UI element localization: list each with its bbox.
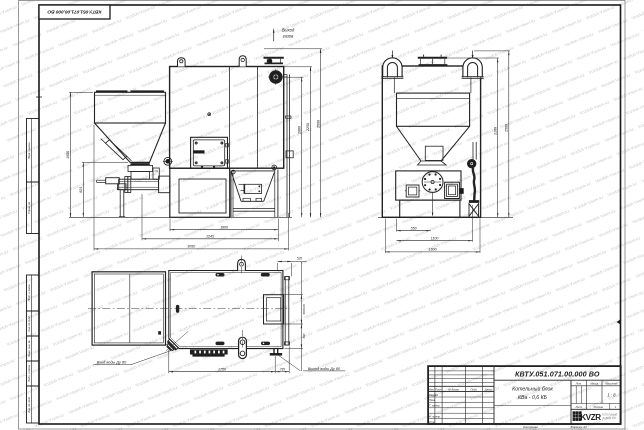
svg-text:Vozduh-Vsem.kz: Vozduh-Vsem.kz	[610, 235, 641, 251]
svg-text:Vozduh-Vsem.kz: Vozduh-Vsem.kz	[150, 235, 181, 251]
svg-text:Vozduh-Vsem.kz: Vozduh-Vsem.kz	[539, 4, 570, 20]
svg-text:2500: 2500	[316, 120, 320, 129]
svg-text:Vozduh-Vsem.kz: Vozduh-Vsem.kz	[251, 0, 282, 7]
svg-text:Vozduh-Vsem.kz: Vozduh-Vsem.kz	[245, 86, 276, 102]
svg-text:500±20: 500±20	[302, 304, 306, 315]
svg-text:Vozduh-Vsem.kz: Vozduh-Vsem.kz	[561, 181, 592, 197]
svg-text:Vozduh-Vsem.kz: Vozduh-Vsem.kz	[355, 4, 386, 20]
svg-text:Vozduh-Vsem.kz: Vozduh-Vsem.kz	[83, 263, 114, 279]
svg-text:Vozduh-Vsem.kz: Vozduh-Vsem.kz	[165, 303, 196, 319]
svg-text:Копировал: Копировал	[523, 425, 538, 429]
svg-text:Vozduh-Vsem.kz: Vozduh-Vsem.kz	[180, 167, 211, 183]
svg-text:Vozduh-Vsem.kz: Vozduh-Vsem.kz	[524, 140, 555, 156]
svg-text:Vozduh-Vsem.kz: Vozduh-Vsem.kz	[252, 399, 283, 415]
svg-text:Vozduh-Vsem.kz: Vozduh-Vsem.kz	[622, 249, 644, 265]
svg-text:Листов: Листов	[592, 405, 603, 409]
svg-text:Vozduh-Vsem.kz: Vozduh-Vsem.kz	[0, 249, 9, 265]
svg-text:ЗАВОД КЗР: ЗАВОД КЗР	[603, 417, 617, 420]
svg-text:Подп.: Подп.	[471, 387, 478, 391]
svg-text:Справ. №: Справ. №	[27, 202, 31, 214]
svg-text:Vozduh-Vsem.kz: Vozduh-Vsem.kz	[239, 181, 270, 197]
svg-text:Vozduh-Vsem.kz: Vozduh-Vsem.kz	[159, 195, 190, 211]
svg-text:Vozduh-Vsem.kz: Vozduh-Vsem.kz	[236, 127, 267, 143]
svg-text:Vozduh-Vsem.kz: Vozduh-Vsem.kz	[377, 181, 408, 197]
svg-text:Vozduh-Vsem.kz: Vozduh-Vsem.kz	[190, 127, 221, 143]
svg-text:Инв. № подл.: Инв. № подл.	[27, 396, 31, 413]
svg-text:Vozduh-Vsem.kz: Vozduh-Vsem.kz	[589, 263, 620, 279]
svg-text:Vozduh-Vsem.kz: Vozduh-Vsem.kz	[333, 31, 364, 47]
svg-text:Vozduh-Vsem.kz: Vozduh-Vsem.kz	[613, 290, 644, 306]
svg-text:Vozduh-Vsem.kz: Vozduh-Vsem.kz	[297, 0, 328, 7]
svg-text:Vozduh-Vsem.kz: Vozduh-Vsem.kz	[352, 154, 383, 170]
svg-text:Vozduh-Vsem.kz: Vozduh-Vsem.kz	[195, 31, 226, 47]
svg-text:Vozduh-Vsem.kz: Vozduh-Vsem.kz	[597, 18, 628, 34]
svg-text:Vozduh-Vsem.kz: Vozduh-Vsem.kz	[567, 86, 598, 102]
svg-text:795: 795	[280, 367, 286, 371]
svg-text:Взам. инв. №: Взам. инв. №	[27, 340, 31, 357]
svg-text:Vozduh-Vsem.kz: Vozduh-Vsem.kz	[346, 45, 377, 61]
svg-text:Перв. примен.: Перв. примен.	[27, 141, 31, 159]
svg-text:Vozduh-Vsem.kz: Vozduh-Vsem.kz	[98, 331, 129, 347]
svg-text:Vozduh-Vsem.kz: Vozduh-Vsem.kz	[193, 181, 224, 197]
svg-text:Vozduh-Vsem.kz: Vozduh-Vsem.kz	[475, 290, 506, 306]
svg-text:1600: 1600	[429, 248, 437, 252]
svg-text:Vozduh-Vsem.kz: Vozduh-Vsem.kz	[640, 167, 644, 183]
svg-text:Vozduh-Vsem.kz: Vozduh-Vsem.kz	[64, 344, 95, 360]
svg-text:Изм.: Изм.	[429, 387, 435, 391]
svg-text:КВТУ.051.071.00.000 ВО: КВТУ.051.071.00.000 ВО	[515, 370, 600, 379]
svg-text:Vozduh-Vsem.kz: Vozduh-Vsem.kz	[46, 222, 77, 238]
svg-text:Vozduh-Vsem.kz: Vozduh-Vsem.kz	[545, 113, 576, 129]
svg-text:Vozduh-Vsem.kz: Vozduh-Vsem.kz	[36, 59, 67, 75]
svg-text:Vozduh-Vsem.kz: Vozduh-Vsem.kz	[272, 167, 303, 183]
svg-text:Vozduh-Vsem.kz: Vozduh-Vsem.kz	[368, 222, 399, 238]
svg-text:Vozduh-Vsem.kz: Vozduh-Vsem.kz	[319, 371, 350, 387]
svg-text:Масса: Масса	[590, 382, 598, 386]
svg-text:Vozduh-Vsem.kz: Vozduh-Vsem.kz	[181, 371, 212, 387]
svg-text:Vozduh-Vsem.kz: Vozduh-Vsem.kz	[564, 235, 595, 251]
svg-text:Vozduh-Vsem.kz: Vozduh-Vsem.kz	[76, 154, 107, 170]
svg-text:Vozduh-Vsem.kz: Vozduh-Vsem.kz	[585, 4, 616, 20]
svg-text:Vozduh-Vsem.kz: Vozduh-Vsem.kz	[438, 249, 469, 265]
svg-text:Vozduh-Vsem.kz: Vozduh-Vsem.kz	[138, 426, 169, 430]
svg-text:Vozduh-Vsem.kz: Vozduh-Vsem.kz	[52, 127, 83, 143]
svg-text:Vozduh-Vsem.kz: Vozduh-Vsem.kz	[276, 426, 307, 430]
svg-text:Vozduh-Vsem.kz: Vozduh-Vsem.kz	[414, 222, 445, 238]
svg-text:Vozduh-Vsem.kz: Vozduh-Vsem.kz	[585, 208, 616, 224]
svg-text:Vozduh-Vsem.kz: Vozduh-Vsem.kz	[313, 263, 344, 279]
svg-text:Котельный блок: Котельный блок	[512, 385, 553, 392]
svg-text:Vozduh-Vsem.kz: Vozduh-Vsem.kz	[429, 86, 460, 102]
svg-text:Vozduh-Vsem.kz: Vozduh-Vsem.kz	[18, 344, 49, 360]
svg-text:Vozduh-Vsem.kz: Vozduh-Vsem.kz	[206, 399, 237, 415]
svg-text:Vozduh-Vsem.kz: Vozduh-Vsem.kz	[39, 113, 70, 129]
svg-text:Vozduh-Vsem.kz: Vozduh-Vsem.kz	[282, 331, 313, 347]
svg-text:Vozduh-Vsem.kz: Vozduh-Vsem.kz	[89, 371, 120, 387]
svg-text:Vozduh-Vsem.kz: Vozduh-Vsem.kz	[561, 385, 592, 401]
svg-text:Vozduh-Vsem.kz: Vozduh-Vsem.kz	[604, 127, 635, 143]
svg-text:Vozduh-Vsem.kz: Vozduh-Vsem.kz	[119, 99, 150, 115]
svg-text:Vozduh-Vsem.kz: Vozduh-Vsem.kz	[242, 235, 273, 251]
svg-text:Vozduh-Vsem.kz: Vozduh-Vsem.kz	[417, 276, 448, 292]
svg-text:Vozduh-Vsem.kz: Vozduh-Vsem.kz	[512, 331, 543, 347]
svg-text:2500: 2500	[505, 124, 509, 133]
svg-text:Vozduh-Vsem.kz: Vozduh-Vsem.kz	[140, 72, 171, 88]
svg-text:Vozduh-Vsem.kz: Vozduh-Vsem.kz	[414, 426, 445, 430]
svg-text:Vozduh-Vsem.kz: Vozduh-Vsem.kz	[508, 72, 539, 88]
svg-text:Vozduh-Vsem.kz: Vozduh-Vsem.kz	[592, 317, 623, 333]
svg-text:Vozduh-Vsem.kz: Vozduh-Vsem.kz	[371, 276, 402, 292]
svg-text:Vozduh-Vsem.kz: Vozduh-Vsem.kz	[85, 113, 116, 129]
svg-text:Vozduh-Vsem.kz: Vozduh-Vsem.kz	[497, 263, 528, 279]
svg-text:Vozduh-Vsem.kz: Vozduh-Vsem.kz	[509, 276, 540, 292]
svg-text:Vozduh-Vsem.kz: Vozduh-Vsem.kz	[374, 331, 405, 347]
svg-text:Vozduh-Vsem.kz: Vozduh-Vsem.kz	[0, 208, 18, 224]
svg-text:Vozduh-Vsem.kz: Vozduh-Vsem.kz	[162, 249, 193, 265]
svg-text:Vozduh-Vsem.kz: Vozduh-Vsem.kz	[171, 208, 202, 224]
svg-text:Vozduh-Vsem.kz: Vozduh-Vsem.kz	[570, 140, 601, 156]
svg-text:Vozduh-Vsem.kz: Vozduh-Vsem.kz	[383, 86, 414, 102]
svg-text:Vozduh-Vsem.kz: Vozduh-Vsem.kz	[405, 263, 436, 279]
svg-text:Vozduh-Vsem.kz: Vozduh-Vsem.kz	[619, 195, 644, 211]
svg-text:Vozduh-Vsem.kz: Vozduh-Vsem.kz	[70, 45, 101, 61]
svg-text:Vozduh-Vsem.kz: Vozduh-Vsem.kz	[637, 113, 644, 129]
svg-text:Vozduh-Vsem.kz: Vozduh-Vsem.kz	[631, 4, 644, 20]
svg-text:Vozduh-Vsem.kz: Vozduh-Vsem.kz	[459, 18, 490, 34]
svg-text:Vozduh-Vsem.kz: Vozduh-Vsem.kz	[224, 317, 255, 333]
svg-text:Vozduh-Vsem.kz: Vozduh-Vsem.kz	[484, 249, 515, 265]
svg-text:Vozduh-Vsem.kz: Vozduh-Vsem.kz	[328, 127, 359, 143]
svg-text:Vozduh-Vsem.kz: Vozduh-Vsem.kz	[149, 31, 180, 47]
svg-text:Vozduh-Vsem.kz: Vozduh-Vsem.kz	[411, 371, 442, 387]
svg-text:Vozduh-Vsem.kz: Vozduh-Vsem.kz	[598, 222, 629, 238]
svg-text:Vozduh-Vsem.kz: Vozduh-Vsem.kz	[294, 140, 325, 156]
svg-text:Vozduh-Vsem.kz: Vozduh-Vsem.kz	[466, 331, 497, 347]
svg-text:Vozduh-Vsem.kz: Vozduh-Vsem.kz	[82, 59, 113, 75]
svg-text:Vozduh-Vsem.kz: Vozduh-Vsem.kz	[558, 127, 589, 143]
svg-text:Vozduh-Vsem.kz: Vozduh-Vsem.kz	[171, 4, 202, 20]
svg-text:Vozduh-Vsem.kz: Vozduh-Vsem.kz	[205, 0, 236, 7]
svg-text:Vozduh-Vsem.kz: Vozduh-Vsem.kz	[104, 235, 135, 251]
svg-text:Vozduh-Vsem.kz: Vozduh-Vsem.kz	[481, 0, 512, 7]
svg-text:Vozduh-Vsem.kz: Vozduh-Vsem.kz	[460, 426, 491, 430]
svg-text:Vozduh-Vsem.kz: Vozduh-Vsem.kz	[298, 399, 329, 415]
svg-text:Vozduh-Vsem.kz: Vozduh-Vsem.kz	[588, 59, 619, 75]
svg-text:Vozduh-Vsem.kz: Vozduh-Vsem.kz	[364, 167, 395, 183]
svg-text:Vozduh-Vsem.kz: Vozduh-Vsem.kz	[625, 99, 644, 115]
svg-text:Выход воды Ду 80: Выход воды Ду 80	[308, 367, 341, 371]
svg-text:Vozduh-Vsem.kz: Vozduh-Vsem.kz	[300, 249, 331, 265]
svg-text:Т. контр.: Т. контр.	[429, 404, 440, 408]
svg-text:Vozduh-Vsem.kz: Vozduh-Vsem.kz	[232, 72, 263, 88]
svg-text:Vozduh-Vsem.kz: Vozduh-Vsem.kz	[218, 412, 249, 428]
svg-text:Vozduh-Vsem.kz: Vozduh-Vsem.kz	[107, 290, 138, 306]
svg-text:Vozduh-Vsem.kz: Vozduh-Vsem.kz	[346, 249, 377, 265]
svg-text:Vozduh-Vsem.kz: Vozduh-Vsem.kz	[404, 59, 435, 75]
svg-text:Vozduh-Vsem.kz: Vozduh-Vsem.kz	[48, 72, 79, 88]
svg-text:Vozduh-Vsem.kz: Vozduh-Vsem.kz	[159, 0, 190, 7]
svg-text:Vozduh-Vsem.kz: Vozduh-Vsem.kz	[217, 4, 248, 20]
svg-text:Vozduh-Vsem.kz: Vozduh-Vsem.kz	[563, 31, 594, 47]
svg-text:Подп. и дата: Подп. и дата	[27, 284, 31, 301]
svg-text:Vozduh-Vsem.kz: Vozduh-Vsem.kz	[183, 18, 214, 34]
svg-text:Vozduh-Vsem.kz: Vozduh-Vsem.kz	[383, 290, 414, 306]
svg-text:Vozduh-Vsem.kz: Vozduh-Vsem.kz	[6, 331, 37, 347]
svg-text:2100: 2100	[493, 127, 497, 136]
svg-text:Vozduh-Vsem.kz: Vozduh-Vsem.kz	[92, 426, 123, 430]
svg-text:Vozduh-Vsem.kz: Vozduh-Vsem.kz	[68, 399, 99, 415]
svg-text:Vozduh-Vsem.kz: Vozduh-Vsem.kz	[321, 18, 352, 34]
svg-text:Vozduh-Vsem.kz: Vozduh-Vsem.kz	[0, 0, 6, 7]
svg-text:Vozduh-Vsem.kz: Vozduh-Vsem.kz	[55, 385, 86, 401]
svg-text:Vozduh-Vsem.kz: Vozduh-Vsem.kz	[598, 426, 629, 430]
svg-text:Vozduh-Vsem.kz: Vozduh-Vsem.kz	[570, 344, 601, 360]
svg-text:Vozduh-Vsem.kz: Vozduh-Vsem.kz	[340, 344, 371, 360]
svg-text:Vozduh-Vsem.kz: Vozduh-Vsem.kz	[493, 4, 524, 20]
svg-text:Vozduh-Vsem.kz: Vozduh-Vsem.kz	[199, 290, 230, 306]
svg-text:КВТУ.051.071.00.000 ВО: КВТУ.051.071.00.000 ВО	[47, 8, 101, 14]
svg-text:Vozduh-Vsem.kz: Vozduh-Vsem.kz	[481, 195, 512, 211]
svg-text:Vozduh-Vsem.kz: Vozduh-Vsem.kz	[521, 290, 552, 306]
svg-text:Vozduh-Vsem.kz: Vozduh-Vsem.kz	[390, 399, 421, 415]
svg-text:Vozduh-Vsem.kz: Vozduh-Vsem.kz	[309, 208, 340, 224]
svg-text:Vozduh-Vsem.kz: Vozduh-Vsem.kz	[429, 290, 460, 306]
svg-text:Vozduh-Vsem.kz: Vozduh-Vsem.kz	[129, 263, 160, 279]
svg-text:Vozduh-Vsem.kz: Vozduh-Vsem.kz	[500, 317, 531, 333]
svg-text:Vozduh-Vsem.kz: Vozduh-Vsem.kz	[582, 154, 613, 170]
svg-text:Vozduh-Vsem.kz: Vozduh-Vsem.kz	[126, 412, 157, 428]
svg-text:Vozduh-Vsem.kz: Vozduh-Vsem.kz	[496, 59, 527, 75]
svg-text:Vozduh-Vsem.kz: Vozduh-Vsem.kz	[631, 208, 644, 224]
svg-text:Vozduh-Vsem.kz: Vozduh-Vsem.kz	[600, 72, 631, 88]
svg-text:Vozduh-Vsem.kz: Vozduh-Vsem.kz	[539, 208, 570, 224]
svg-text:№ докум.: № докум.	[448, 387, 460, 391]
svg-text:Vozduh-Vsem.kz: Vozduh-Vsem.kz	[328, 331, 359, 347]
svg-text:Vozduh-Vsem.kz: Vozduh-Vsem.kz	[362, 317, 393, 333]
svg-text:Vozduh-Vsem.kz: Vozduh-Vsem.kz	[153, 86, 184, 102]
svg-text:Vozduh-Vsem.kz: Vozduh-Vsem.kz	[138, 222, 169, 238]
svg-text:Vozduh-Vsem.kz: Vozduh-Vsem.kz	[528, 399, 559, 415]
svg-text:Vozduh-Vsem.kz: Vozduh-Vsem.kz	[447, 4, 478, 20]
svg-text:Vozduh-Vsem.kz: Vozduh-Vsem.kz	[156, 140, 187, 156]
svg-text:Vozduh-Vsem.kz: Vozduh-Vsem.kz	[576, 249, 607, 265]
svg-text:Vozduh-Vsem.kz: Vozduh-Vsem.kz	[73, 303, 104, 319]
svg-text:Vozduh-Vsem.kz: Vozduh-Vsem.kz	[113, 195, 144, 211]
svg-text:Vozduh-Vsem.kz: Vozduh-Vsem.kz	[285, 385, 316, 401]
svg-text:Vozduh-Vsem.kz: Vozduh-Vsem.kz	[542, 59, 573, 75]
svg-text:Vozduh-Vsem.kz: Vozduh-Vsem.kz	[0, 303, 12, 319]
svg-text:Vozduh-Vsem.kz: Vozduh-Vsem.kz	[638, 317, 644, 333]
svg-text:Vozduh-Vsem.kz: Vozduh-Vsem.kz	[435, 0, 466, 7]
svg-text:821: 821	[79, 187, 83, 193]
svg-text:Vozduh-Vsem.kz: Vozduh-Vsem.kz	[395, 303, 426, 319]
svg-text:Vozduh-Vsem.kz: Vozduh-Vsem.kz	[94, 72, 125, 88]
svg-text:Vozduh-Vsem.kz: Vozduh-Vsem.kz	[635, 263, 644, 279]
svg-text:Vozduh-Vsem.kz: Vozduh-Vsem.kz	[620, 399, 644, 415]
svg-text:Vozduh-Vsem.kz: Vozduh-Vsem.kz	[67, 195, 98, 211]
svg-text:Vozduh-Vsem.kz: Vozduh-Vsem.kz	[162, 45, 193, 61]
svg-text:Vozduh-Vsem.kz: Vozduh-Vsem.kz	[273, 371, 304, 387]
svg-text:Vozduh-Vsem.kz: Vozduh-Vsem.kz	[552, 222, 583, 238]
svg-text:Vozduh-Vsem.kz: Vozduh-Vsem.kz	[208, 45, 239, 61]
svg-text:Vozduh-Vsem.kz: Vozduh-Vsem.kz	[88, 167, 119, 183]
svg-text:Vozduh-Vsem.kz: Vozduh-Vsem.kz	[324, 72, 355, 88]
svg-text:Лит.: Лит.	[575, 382, 582, 386]
svg-text:Vozduh-Vsem.kz: Vozduh-Vsem.kz	[607, 181, 638, 197]
svg-text:Vozduh-Vsem.kz: Vozduh-Vsem.kz	[312, 59, 343, 75]
svg-text:Vozduh-Vsem.kz: Vozduh-Vsem.kz	[147, 385, 178, 401]
svg-text:1800: 1800	[220, 225, 228, 229]
svg-text:Vozduh-Vsem.kz: Vozduh-Vsem.kz	[368, 426, 399, 430]
svg-text:Выход: Выход	[282, 28, 295, 33]
svg-text:Vozduh-Vsem.kz: Vozduh-Vsem.kz	[123, 358, 154, 374]
svg-text:Vozduh-Vsem.kz: Vozduh-Vsem.kz	[186, 72, 217, 88]
svg-text:Vozduh-Vsem.kz: Vozduh-Vsem.kz	[386, 344, 417, 360]
svg-text:Vozduh-Vsem.kz: Vozduh-Vsem.kz	[223, 113, 254, 129]
svg-text:Vozduh-Vsem.kz: Vozduh-Vsem.kz	[579, 303, 610, 319]
svg-text:Vozduh-Vsem.kz: Vozduh-Vsem.kz	[42, 167, 73, 183]
svg-text:Vozduh-Vsem.kz: Vozduh-Vsem.kz	[61, 290, 92, 306]
svg-text:Vozduh-Vsem.kz: Vozduh-Vsem.kz	[530, 45, 561, 61]
svg-text:Vozduh-Vsem.kz: Vozduh-Vsem.kz	[374, 127, 405, 143]
svg-text:Vozduh-Vsem.kz: Vozduh-Vsem.kz	[502, 167, 533, 183]
svg-text:Vozduh-Vsem.kz: Vozduh-Vsem.kz	[269, 113, 300, 129]
svg-text:Vozduh-Vsem.kz: Vozduh-Vsem.kz	[37, 263, 68, 279]
svg-text:Vozduh-Vsem.kz: Vozduh-Vsem.kz	[119, 303, 150, 319]
svg-text:Vozduh-Vsem.kz: Vozduh-Vsem.kz	[125, 4, 156, 20]
svg-text:Vozduh-Vsem.kz: Vozduh-Vsem.kz	[199, 86, 230, 102]
svg-text:Vozduh-Vsem.kz: Vozduh-Vsem.kz	[487, 99, 518, 115]
svg-text:Vozduh-Vsem.kz: Vozduh-Vsem.kz	[110, 344, 141, 360]
svg-text:Vozduh-Vsem.kz: Vozduh-Vsem.kz	[517, 31, 548, 47]
svg-text:Vozduh-Vsem.kz: Vozduh-Vsem.kz	[448, 412, 479, 428]
svg-text:Vozduh-Vsem.kz: Vozduh-Vsem.kz	[579, 99, 610, 115]
svg-text:1: 1	[615, 405, 617, 409]
svg-text:Утв.: Утв.	[429, 420, 435, 424]
svg-text:Vozduh-Vsem.kz: Vozduh-Vsem.kz	[478, 140, 509, 156]
svg-text:Vozduh-Vsem.kz: Vozduh-Vsem.kz	[291, 290, 322, 306]
svg-text:Vozduh-Vsem.kz: Vozduh-Vsem.kz	[540, 412, 571, 428]
svg-text:Vozduh-Vsem.kz: Vozduh-Vsem.kz	[294, 344, 325, 360]
svg-text:Vozduh-Vsem.kz: Vozduh-Vsem.kz	[15, 86, 46, 102]
svg-text:550: 550	[411, 226, 417, 230]
svg-text:Vozduh-Vsem.kz: Vozduh-Vsem.kz	[401, 208, 432, 224]
svg-text:Vozduh-Vsem.kz: Vozduh-Vsem.kz	[9, 385, 40, 401]
svg-text:Vozduh-Vsem.kz: Vozduh-Vsem.kz	[0, 317, 25, 333]
svg-text:Vozduh-Vsem.kz: Vozduh-Vsem.kz	[438, 45, 469, 61]
svg-text:Vozduh-Vsem.kz: Vozduh-Vsem.kz	[254, 249, 285, 265]
svg-text:Vozduh-Vsem.kz: Vozduh-Vsem.kz	[0, 358, 16, 374]
svg-text:Vozduh-Vsem.kz: Vozduh-Vsem.kz	[555, 276, 586, 292]
svg-text:1900: 1900	[66, 151, 70, 159]
svg-text:Vozduh-Vsem.kz: Vozduh-Vsem.kz	[125, 208, 156, 224]
svg-text:1 : 8: 1 : 8	[607, 393, 616, 398]
svg-text:Vozduh-Vsem.kz: Vozduh-Vsem.kz	[353, 358, 384, 374]
svg-text:Vozduh-Vsem.kz: Vozduh-Vsem.kz	[337, 86, 368, 102]
svg-text:Vozduh-Vsem.kz: Vozduh-Vsem.kz	[316, 317, 347, 333]
svg-text:Vozduh-Vsem.kz: Vozduh-Vsem.kz	[43, 371, 74, 387]
svg-text:Vozduh-Vsem.kz: Vozduh-Vsem.kz	[487, 303, 518, 319]
svg-text:Vozduh-Vsem.kz: Vozduh-Vsem.kz	[451, 263, 482, 279]
svg-text:Формат А2: Формат А2	[570, 425, 587, 429]
svg-text:Vozduh-Vsem.kz: Vozduh-Vsem.kz	[554, 72, 585, 88]
svg-text:Vozduh-Vsem.kz: Vozduh-Vsem.kz	[478, 344, 509, 360]
svg-text:Vozduh-Vsem.kz: Vozduh-Vsem.kz	[432, 344, 463, 360]
svg-text:Н. контр.: Н. контр.	[429, 414, 441, 418]
svg-text:Vozduh-Vsem.kz: Vozduh-Vsem.kz	[303, 303, 334, 319]
svg-text:Vozduh-Vsem.kz: Vozduh-Vsem.kz	[420, 331, 451, 347]
svg-text:Vozduh-Vsem.kz: Vozduh-Vsem.kz	[576, 45, 607, 61]
svg-text:Vozduh-Vsem.kz: Vozduh-Vsem.kz	[401, 4, 432, 20]
svg-text:Vozduh-Vsem.kz: Vozduh-Vsem.kz	[325, 276, 356, 292]
svg-text:Vozduh-Vsem.kz: Vozduh-Vsem.kz	[613, 86, 644, 102]
svg-text:Vozduh-Vsem.kz: Vozduh-Vsem.kz	[527, 195, 558, 211]
svg-text:Подп. и дата: Подп. и дата	[27, 365, 31, 382]
svg-text:Vozduh-Vsem.kz: Vozduh-Vsem.kz	[303, 99, 334, 115]
svg-text:Vozduh-Vsem.kz: Vozduh-Vsem.kz	[521, 86, 552, 102]
svg-text:Vozduh-Vsem.kz: Vozduh-Vsem.kz	[0, 154, 15, 170]
svg-text:Vozduh-Vsem.kz: Vozduh-Vsem.kz	[0, 371, 28, 387]
svg-text:Vozduh-Vsem.kz: Vozduh-Vsem.kz	[137, 18, 168, 34]
svg-text:Vozduh-Vsem.kz: Vozduh-Vsem.kz	[413, 18, 444, 34]
svg-text:Vozduh-Vsem.kz: Vozduh-Vsem.kz	[334, 235, 365, 251]
svg-text:Vozduh-Vsem.kz: Vozduh-Vsem.kz	[349, 99, 380, 115]
svg-text:Vozduh-Vsem.kz: Vozduh-Vsem.kz	[70, 249, 101, 265]
svg-text:Vozduh-Vsem.kz: Vozduh-Vsem.kz	[416, 72, 447, 88]
svg-text:Vozduh-Vsem.kz: Vozduh-Vsem.kz	[79, 208, 110, 224]
svg-text:Vozduh-Vsem.kz: Vozduh-Vsem.kz	[629, 358, 644, 374]
svg-text:газов: газов	[283, 34, 294, 39]
svg-text:Дата: Дата	[484, 387, 492, 391]
svg-text:Vozduh-Vsem.kz: Vozduh-Vsem.kz	[177, 113, 208, 129]
svg-text:Vozduh-Vsem.kz: Vozduh-Vsem.kz	[184, 426, 215, 430]
svg-text:Vozduh-Vsem.kz: Vozduh-Vsem.kz	[11, 31, 42, 47]
svg-text:Vozduh-Vsem.kz: Vozduh-Vsem.kz	[377, 385, 408, 401]
svg-text:КВа - 0,6 КБ: КВа - 0,6 КБ	[518, 395, 548, 401]
svg-text:Vozduh-Vsem.kz: Vozduh-Vsem.kz	[490, 154, 521, 170]
svg-text:Vozduh-Vsem.kz: Vozduh-Vsem.kz	[40, 317, 71, 333]
svg-text:Vozduh-Vsem.kz: Vozduh-Vsem.kz	[460, 222, 491, 238]
svg-text:Vozduh-Vsem.kz: Vozduh-Vsem.kz	[132, 317, 163, 333]
svg-text:Vozduh-Vsem.kz: Vozduh-Vsem.kz	[95, 276, 126, 292]
svg-text:Vozduh-Vsem.kz: Vozduh-Vsem.kz	[128, 59, 159, 75]
svg-text:1750: 1750	[218, 367, 226, 371]
svg-text:Vozduh-Vsem.kz: Vozduh-Vsem.kz	[9, 181, 40, 197]
svg-text:Vozduh-Vsem.kz: Vozduh-Vsem.kz	[178, 317, 209, 333]
svg-text:Vozduh-Vsem.kz: Vozduh-Vsem.kz	[49, 276, 80, 292]
svg-text:Vozduh-Vsem.kz: Vozduh-Vsem.kz	[193, 385, 224, 401]
svg-text:Vozduh-Vsem.kz: Vozduh-Vsem.kz	[632, 412, 644, 428]
svg-text:Vozduh-Vsem.kz: Vozduh-Vsem.kz	[187, 276, 218, 292]
svg-text:Vozduh-Vsem.kz: Vozduh-Vsem.kz	[57, 31, 88, 47]
svg-text:Vozduh-Vsem.kz: Vozduh-Vsem.kz	[80, 412, 111, 428]
svg-text:Vozduh-Vsem.kz: Vozduh-Vsem.kz	[389, 0, 420, 7]
svg-text:Vozduh-Vsem.kz: Vozduh-Vsem.kz	[110, 140, 141, 156]
svg-text:Пров.: Пров.	[429, 398, 436, 402]
svg-text:Vozduh-Vsem.kz: Vozduh-Vsem.kz	[567, 290, 598, 306]
svg-text:Лист: Лист	[434, 387, 443, 391]
svg-text:Vozduh-Vsem.kz: Vozduh-Vsem.kz	[408, 317, 439, 333]
svg-text:Vozduh-Vsem.kz: Vozduh-Vsem.kz	[114, 399, 145, 415]
svg-text:Vozduh-Vsem.kz: Vozduh-Vsem.kz	[506, 222, 537, 238]
svg-text:Vozduh-Vsem.kz: Vozduh-Vsem.kz	[300, 45, 331, 61]
svg-text:Vozduh-Vsem.kz: Vozduh-Vsem.kz	[52, 331, 83, 347]
svg-text:Vozduh-Vsem.kz: Vozduh-Vsem.kz	[0, 99, 12, 115]
svg-text:Vozduh-Vsem.kz: Vozduh-Vsem.kz	[410, 167, 441, 183]
svg-text:Vozduh-Vsem.kz: Vozduh-Vsem.kz	[98, 127, 129, 143]
svg-text:Vozduh-Vsem.kz: Vozduh-Vsem.kz	[395, 99, 426, 115]
svg-text:Vozduh-Vsem.kz: Vozduh-Vsem.kz	[31, 358, 62, 374]
